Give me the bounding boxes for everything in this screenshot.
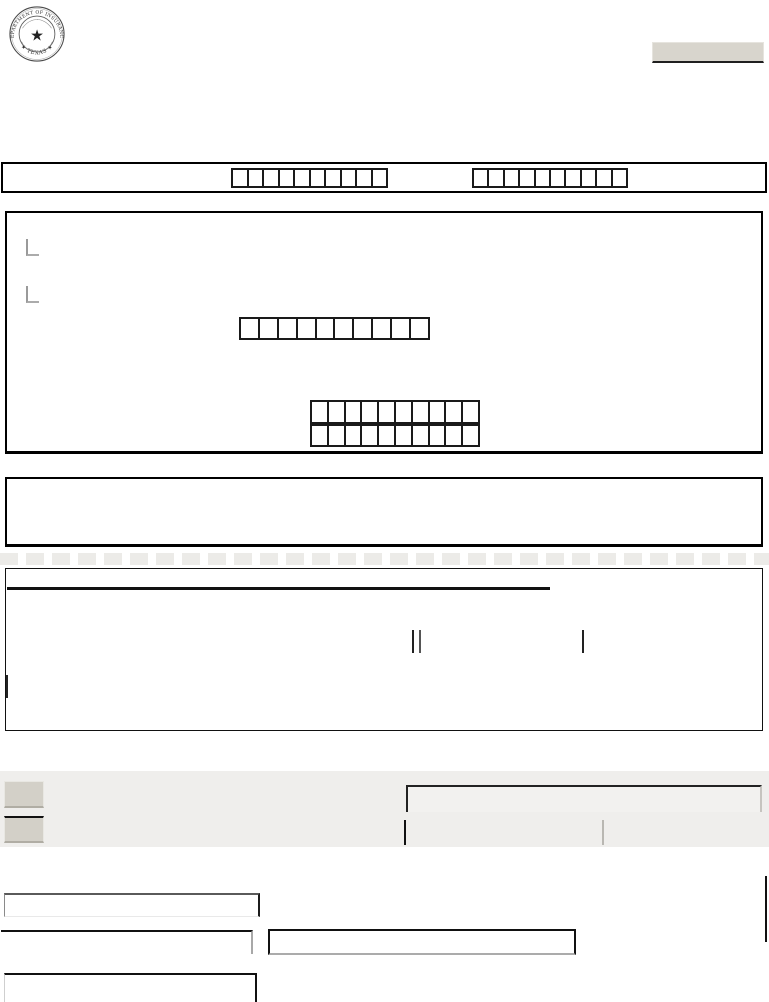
svg-text:★ TEXAS ★: ★ TEXAS ★ [19, 44, 54, 57]
bottom-input-2-right[interactable] [268, 929, 576, 955]
comb-cell[interactable] [461, 400, 480, 424]
star-icon: ★ [30, 26, 44, 44]
section-box-3 [5, 568, 763, 731]
comb-cell[interactable] [352, 317, 373, 340]
checkbox-mark-2[interactable] [26, 286, 39, 303]
comb-cell[interactable] [277, 317, 298, 340]
comb-cell[interactable] [296, 317, 317, 340]
perforation-separator [0, 553, 769, 565]
header-comb-field-right[interactable] [472, 168, 629, 188]
texas-doi-seal: DEPARTMENT OF INSURANCE ★ TEXAS ★ ★ [8, 5, 66, 63]
section-box-2 [5, 477, 763, 547]
footer-cell-divider-dark [404, 820, 406, 845]
field-divider-tick-1 [412, 630, 414, 653]
form-page: DEPARTMENT OF INSURANCE ★ TEXAS ★ ★ [0, 0, 769, 1002]
comb-cell[interactable] [333, 317, 354, 340]
comb-cell[interactable] [371, 317, 392, 340]
comb-cell[interactable] [239, 317, 260, 340]
box1-comb-field-upper[interactable] [239, 317, 431, 340]
heading-underline [7, 587, 550, 590]
checkbox-mark-1[interactable] [26, 239, 39, 256]
footer-input-field[interactable] [406, 785, 762, 812]
bottom-input-2-left[interactable] [1, 930, 253, 954]
box1-comb-field-row1[interactable] [310, 400, 481, 424]
field-divider-tick-4 [6, 675, 8, 698]
seal-bottom-text: ★ TEXAS ★ [19, 44, 54, 57]
comb-cell[interactable] [461, 424, 480, 447]
bottom-input-3[interactable] [4, 973, 257, 1002]
comb-cell[interactable] [371, 168, 389, 188]
header-comb-field-left[interactable] [231, 168, 389, 188]
bottom-input-1[interactable] [4, 893, 260, 917]
field-divider-tick-3 [582, 630, 584, 653]
comb-cell[interactable] [409, 317, 430, 340]
comb-cell[interactable] [258, 317, 279, 340]
field-divider-tick-2 [419, 630, 421, 653]
footer-small-button-1[interactable] [4, 781, 44, 808]
comb-cell[interactable] [315, 317, 336, 340]
footer-small-button-2[interactable] [4, 816, 44, 843]
comb-cell[interactable] [390, 317, 411, 340]
comb-cell[interactable] [611, 168, 628, 188]
footer-cell-divider-light [602, 820, 604, 845]
right-edge-rule [765, 876, 767, 942]
box1-comb-field-row2[interactable] [310, 424, 481, 447]
header-action-button[interactable] [652, 42, 764, 63]
